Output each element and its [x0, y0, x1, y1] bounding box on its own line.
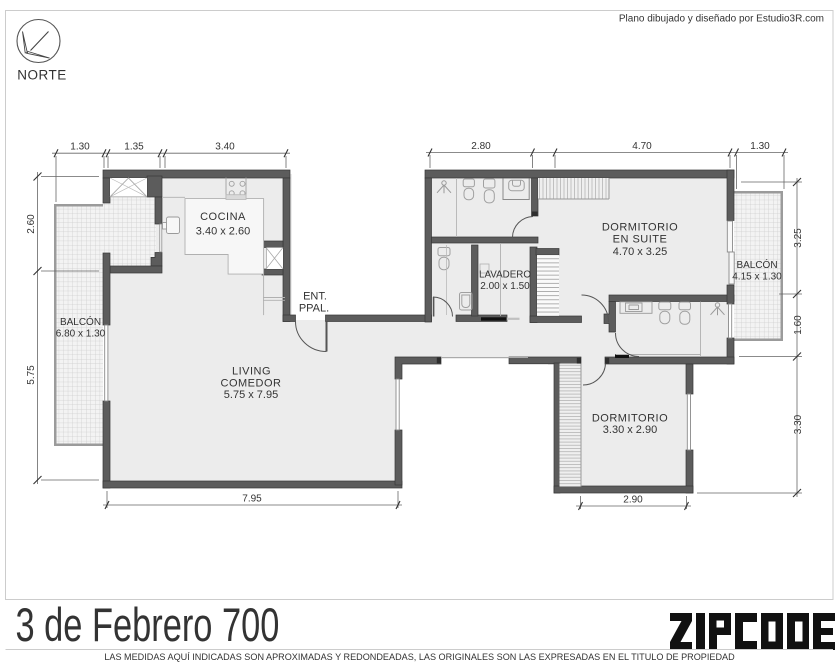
svg-text:ENT.: ENT. — [303, 291, 327, 303]
svg-text:5.75: 5.75 — [26, 365, 37, 385]
svg-text:7.95: 7.95 — [242, 494, 262, 505]
svg-text:3.30 x 2.90: 3.30 x 2.90 — [603, 424, 657, 436]
svg-text:4.70 x 3.25: 4.70 x 3.25 — [613, 246, 667, 258]
svg-text:6.80 x 1.30: 6.80 x 1.30 — [56, 329, 106, 340]
svg-text:Plano dibujado y diseñado por: Plano dibujado y diseñado por Estudio3R.… — [619, 14, 824, 25]
svg-text:1.30: 1.30 — [750, 141, 770, 152]
svg-text:5.75 x 7.95: 5.75 x 7.95 — [224, 389, 278, 401]
svg-text:COCINA: COCINA — [200, 211, 246, 223]
svg-text:3.30: 3.30 — [793, 414, 804, 434]
svg-text:3.25: 3.25 — [793, 228, 804, 248]
svg-text:2.60: 2.60 — [26, 214, 37, 234]
svg-text:1.35: 1.35 — [124, 142, 144, 153]
svg-text:3.40 x 2.60: 3.40 x 2.60 — [196, 226, 250, 238]
svg-text:LAS MEDIDAS AQUÍ INDICADAS SON: LAS MEDIDAS AQUÍ INDICADAS SON APROXIMAD… — [104, 652, 735, 662]
svg-text:EN SUITE: EN SUITE — [613, 234, 668, 246]
svg-text:3.40: 3.40 — [215, 142, 235, 153]
svg-text:LAVADERO: LAVADERO — [479, 270, 531, 281]
svg-text:COMEDOR: COMEDOR — [221, 377, 282, 389]
svg-text:4.70: 4.70 — [632, 141, 652, 152]
svg-text:1.30: 1.30 — [70, 142, 90, 153]
svg-text:2.80: 2.80 — [471, 141, 491, 152]
svg-text:2.00 x 1.50: 2.00 x 1.50 — [480, 281, 530, 292]
svg-text:4.15 x 1.30: 4.15 x 1.30 — [732, 272, 782, 283]
svg-text:1.60: 1.60 — [793, 315, 804, 335]
svg-text:NORTE: NORTE — [17, 68, 67, 83]
svg-text:2.90: 2.90 — [623, 495, 643, 506]
svg-text:PPAL.: PPAL. — [299, 303, 329, 315]
svg-text:BALCÓN: BALCÓN — [736, 258, 777, 271]
svg-text:DORMITORIO: DORMITORIO — [592, 413, 668, 425]
svg-text:BALCÓN: BALCÓN — [60, 315, 101, 328]
svg-text:3 de Febrero 700: 3 de Febrero 700 — [16, 599, 280, 651]
svg-text:DORMITORIO: DORMITORIO — [602, 222, 678, 234]
svg-text:LIVING: LIVING — [232, 366, 271, 378]
